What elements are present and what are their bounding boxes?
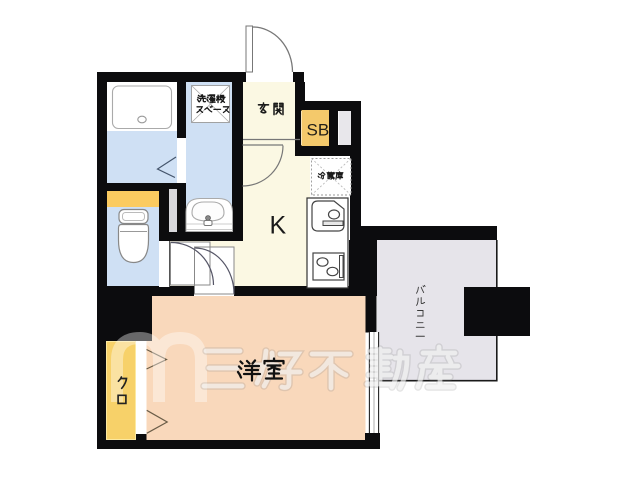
svg-text:SB: SB	[307, 120, 330, 139]
svg-text:K: K	[270, 212, 287, 240]
